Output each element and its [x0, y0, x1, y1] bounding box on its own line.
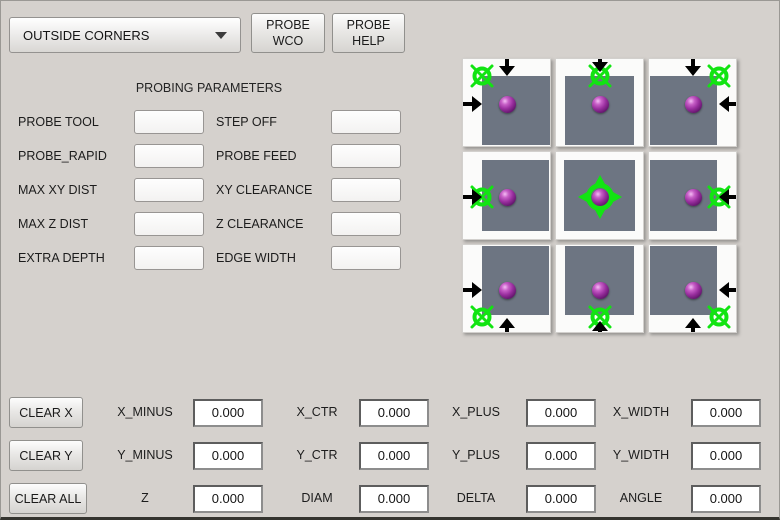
- param-input-extra-depth[interactable]: [134, 246, 204, 270]
- param-input-xy-clearance[interactable]: [331, 178, 401, 202]
- probe-wco-button[interactable]: PROBE WCO: [251, 13, 325, 53]
- param-label-extra-depth: EXTRA DEPTH: [18, 245, 105, 271]
- probe-wco-label-line1: PROBE: [266, 18, 310, 32]
- result-value-y-plus: 0.000: [526, 442, 596, 470]
- diagram-cell-middle-left: [462, 151, 551, 240]
- result-label-y-width: Y_WIDTH: [591, 440, 691, 471]
- probing-parameters-title: PROBING PARAMETERS: [9, 81, 409, 95]
- probe-help-button[interactable]: PROBE HELP: [332, 13, 405, 53]
- arrow-up-icon: [685, 318, 701, 333]
- arrow-left-icon: [719, 189, 737, 205]
- result-label-angle: ANGLE: [591, 483, 691, 514]
- arrow-up-icon: [592, 321, 608, 333]
- probe-panel: OUTSIDE CORNERS PROBE WCO PROBE HELP PRO…: [0, 0, 780, 520]
- param-label-step-off: STEP OFF: [216, 109, 277, 135]
- result-label-y-minus: Y_MINUS: [95, 440, 195, 471]
- result-label-z: Z: [95, 483, 195, 514]
- target-marker-icon: [467, 61, 497, 91]
- probe-mode-dropdown[interactable]: OUTSIDE CORNERS: [9, 17, 241, 53]
- arrow-right-icon: [463, 282, 482, 298]
- result-value-y-ctr: 0.000: [359, 442, 429, 470]
- arrow-left-icon: [719, 96, 737, 112]
- result-label-diam: DIAM: [267, 483, 367, 514]
- result-value-x-ctr: 0.000: [359, 399, 429, 427]
- param-input-step-off[interactable]: [331, 110, 401, 134]
- probe-ball-icon: [499, 282, 516, 299]
- arrow-down-icon: [685, 58, 701, 76]
- diagram-cell-top-left: [462, 58, 551, 147]
- result-label-y-plus: Y_PLUS: [426, 440, 526, 471]
- target-marker-icon: [577, 174, 623, 220]
- arrow-down-icon: [592, 58, 608, 72]
- result-label-x-width: X_WIDTH: [591, 397, 691, 428]
- param-input-z-clearance[interactable]: [331, 212, 401, 236]
- result-value-x-plus: 0.000: [526, 399, 596, 427]
- chevron-down-icon: [215, 32, 227, 39]
- probe-ball-icon: [685, 189, 702, 206]
- probe-position-diagram: [462, 58, 737, 333]
- result-value-y-minus: 0.000: [193, 442, 263, 470]
- clear-all-button[interactable]: CLEAR ALL: [9, 483, 87, 514]
- result-label-x-plus: X_PLUS: [426, 397, 526, 428]
- probe-help-label-line1: PROBE: [347, 18, 391, 32]
- arrow-down-icon: [499, 58, 515, 76]
- result-value-x-width: 0.000: [691, 399, 761, 427]
- result-value-z: 0.000: [193, 485, 263, 513]
- clear-x-button[interactable]: CLEAR X: [9, 397, 83, 428]
- probe-ball-icon: [499, 189, 516, 206]
- arrow-right-icon: [463, 96, 482, 112]
- diagram-cell-top-right: [648, 58, 737, 147]
- diagram-cell-top-center: [555, 58, 644, 147]
- result-value-angle: 0.000: [691, 485, 761, 513]
- result-label-y-ctr: Y_CTR: [267, 440, 367, 471]
- diagram-cell-center: [555, 151, 644, 240]
- probe-ball-icon: [592, 282, 609, 299]
- target-marker-icon: [704, 61, 734, 91]
- param-label-max-z-dist: MAX Z DIST: [18, 211, 88, 237]
- result-value-delta: 0.000: [526, 485, 596, 513]
- param-label-probe-rapid: PROBE_RAPID: [18, 143, 107, 169]
- param-label-z-clearance: Z CLEARANCE: [216, 211, 304, 237]
- result-label-delta: DELTA: [426, 483, 526, 514]
- diagram-cell-bottom-center: [555, 244, 644, 333]
- diagram-cell-bottom-left: [462, 244, 551, 333]
- result-value-x-minus: 0.000: [193, 399, 263, 427]
- probe-ball-icon: [685, 96, 702, 113]
- diagram-cell-middle-right: [648, 151, 737, 240]
- param-label-probe-feed: PROBE FEED: [216, 143, 297, 169]
- arrow-up-icon: [499, 318, 515, 333]
- param-input-probe-feed[interactable]: [331, 144, 401, 168]
- param-input-probe-rapid[interactable]: [134, 144, 204, 168]
- clear-y-button[interactable]: CLEAR Y: [9, 440, 83, 471]
- target-marker-icon: [467, 302, 497, 332]
- param-input-probe-tool[interactable]: [134, 110, 204, 134]
- probe-help-label-line2: HELP: [352, 34, 385, 48]
- param-input-max-xy-dist[interactable]: [134, 178, 204, 202]
- target-marker-icon: [704, 302, 734, 332]
- result-value-y-width: 0.000: [691, 442, 761, 470]
- result-value-diam: 0.000: [359, 485, 429, 513]
- result-label-x-minus: X_MINUS: [95, 397, 195, 428]
- param-label-max-xy-dist: MAX XY DIST: [18, 177, 97, 203]
- arrow-right-icon: [463, 189, 482, 205]
- probe-ball-icon: [592, 96, 609, 113]
- arrow-left-icon: [719, 282, 737, 298]
- param-input-max-z-dist[interactable]: [134, 212, 204, 236]
- result-label-x-ctr: X_CTR: [267, 397, 367, 428]
- probe-ball-icon: [499, 96, 516, 113]
- param-label-probe-tool: PROBE TOOL: [18, 109, 99, 135]
- param-label-xy-clearance: XY CLEARANCE: [216, 177, 312, 203]
- param-input-edge-width[interactable]: [331, 246, 401, 270]
- probe-wco-label-line2: WCO: [273, 34, 304, 48]
- diagram-cell-bottom-right: [648, 244, 737, 333]
- param-label-edge-width: EDGE WIDTH: [216, 245, 296, 271]
- probe-ball-icon: [685, 282, 702, 299]
- probe-mode-value: OUTSIDE CORNERS: [10, 28, 215, 43]
